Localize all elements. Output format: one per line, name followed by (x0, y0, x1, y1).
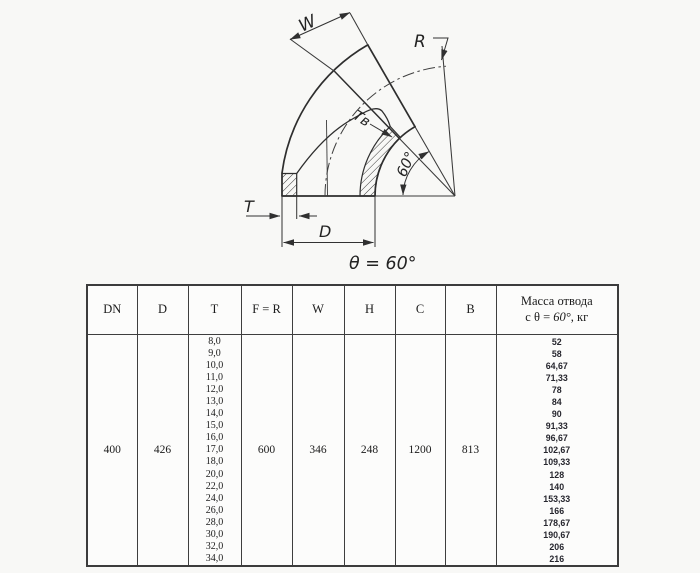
leader-r (433, 38, 448, 60)
t-values-item: 15,0 (189, 420, 241, 432)
t-values-item: 12,0 (189, 384, 241, 396)
cell-f-r: 600 (241, 335, 292, 566)
t-values-item: 13,0 (189, 396, 241, 408)
mass-values-item: 216 (497, 553, 618, 565)
top-face-line (368, 45, 415, 127)
mass-values-item: 78 (497, 384, 618, 396)
t-values-item: 16,0 (189, 432, 241, 444)
label-theta-caption: θ = 60° (349, 254, 417, 274)
t-values: 8,09,010,011,012,013,014,015,016,017,018… (189, 335, 241, 565)
spec-table: DN D T F = R W H C B Масса отвода с θ = … (86, 284, 619, 567)
t-values-item: 22,0 (189, 481, 241, 493)
label-t-bend: Тв (350, 108, 373, 130)
label-r: R (414, 32, 426, 52)
cell-mass-list: 525864,6771,3378849091,3396,67102,67109,… (496, 335, 618, 566)
t-values-item: 14,0 (189, 408, 241, 420)
wall-section-bend (360, 127, 400, 197)
t-values-item: 28,0 (189, 517, 241, 529)
face-extension-line (350, 13, 368, 45)
table-body-row: 400 426 8,09,010,011,012,013,014,015,016… (87, 335, 618, 566)
mass-values-item: 128 (497, 469, 618, 481)
label-d: D (319, 222, 331, 241)
mass-values-item: 58 (497, 348, 618, 360)
mass-values-item: 64,67 (497, 360, 618, 372)
mass-values-item: 166 (497, 505, 618, 517)
header-mass: Масса отвода с θ = 60°, кг (496, 285, 618, 335)
label-angle-60: 60° (394, 149, 419, 179)
mass-values-item: 109,33 (497, 456, 618, 468)
catalog-page: W R Тв 60° T D θ = 60° DN D T F = R W H … (0, 0, 700, 573)
t-values-item: 30,0 (189, 529, 241, 541)
mass-values-item: 190,67 (497, 529, 618, 541)
mass-values-item: 90 (497, 408, 618, 420)
t-values-item: 11,0 (189, 372, 241, 384)
radius-r-line (442, 46, 455, 196)
cell-h: 248 (344, 335, 395, 566)
elbow-drawing: W R Тв 60° T D θ = 60° (0, 0, 700, 282)
mass-values-item: 96,67 (497, 432, 618, 444)
t-values-item: 18,0 (189, 456, 241, 468)
label-t: T (244, 197, 255, 216)
t-values-item: 34,0 (189, 553, 241, 565)
header-mass-line1: Масса отвода (497, 294, 618, 310)
t-values-item: 26,0 (189, 505, 241, 517)
header-b: B (445, 285, 496, 335)
construction-lines (282, 13, 455, 247)
label-w: W (296, 11, 321, 37)
t-values-item: 20,0 (189, 469, 241, 481)
cell-d: 426 (137, 335, 188, 566)
header-h: H (344, 285, 395, 335)
cell-t-list: 8,09,010,011,012,013,014,015,016,017,018… (188, 335, 241, 566)
t-values-item: 9,0 (189, 348, 241, 360)
cell-w: 346 (292, 335, 344, 566)
mass-values-item: 71,33 (497, 372, 618, 384)
mass-values-item: 153,33 (497, 493, 618, 505)
t-values-item: 32,0 (189, 541, 241, 553)
header-mass-angle: 60° (553, 310, 571, 324)
mass-values-item: 178,67 (497, 517, 618, 529)
mass-values: 525864,6771,3378849091,3396,67102,67109,… (497, 335, 618, 565)
t-values-item: 24,0 (189, 493, 241, 505)
section-divider-line (327, 120, 328, 196)
table-header-row: DN D T F = R W H C B Масса отвода с θ = … (87, 285, 618, 335)
cell-c: 1200 (395, 335, 445, 566)
mass-values-item: 91,33 (497, 420, 618, 432)
cell-dn: 400 (87, 335, 137, 566)
mass-values-item: 206 (497, 541, 618, 553)
t-values-item: 8,0 (189, 336, 241, 348)
header-f-r: F = R (241, 285, 292, 335)
mass-values-item: 52 (497, 336, 618, 348)
elbow-drawing-svg: W R Тв 60° T D θ = 60° (0, 0, 700, 282)
wall-section-bottom (282, 174, 297, 197)
header-d: D (137, 285, 188, 335)
cell-b: 813 (445, 335, 496, 566)
drawing-labels: W R Тв 60° T D θ = 60° (244, 11, 426, 274)
mass-values-item: 84 (497, 396, 618, 408)
header-mass-line2: с θ = 60°, кг (497, 310, 618, 326)
header-c: C (395, 285, 445, 335)
mass-values-item: 140 (497, 481, 618, 493)
mass-values-item: 102,67 (497, 444, 618, 456)
header-w: W (292, 285, 344, 335)
t-values-item: 10,0 (189, 360, 241, 372)
t-values-item: 17,0 (189, 444, 241, 456)
header-dn: DN (87, 285, 137, 335)
header-t: T (188, 285, 241, 335)
wall-sections (282, 127, 400, 197)
